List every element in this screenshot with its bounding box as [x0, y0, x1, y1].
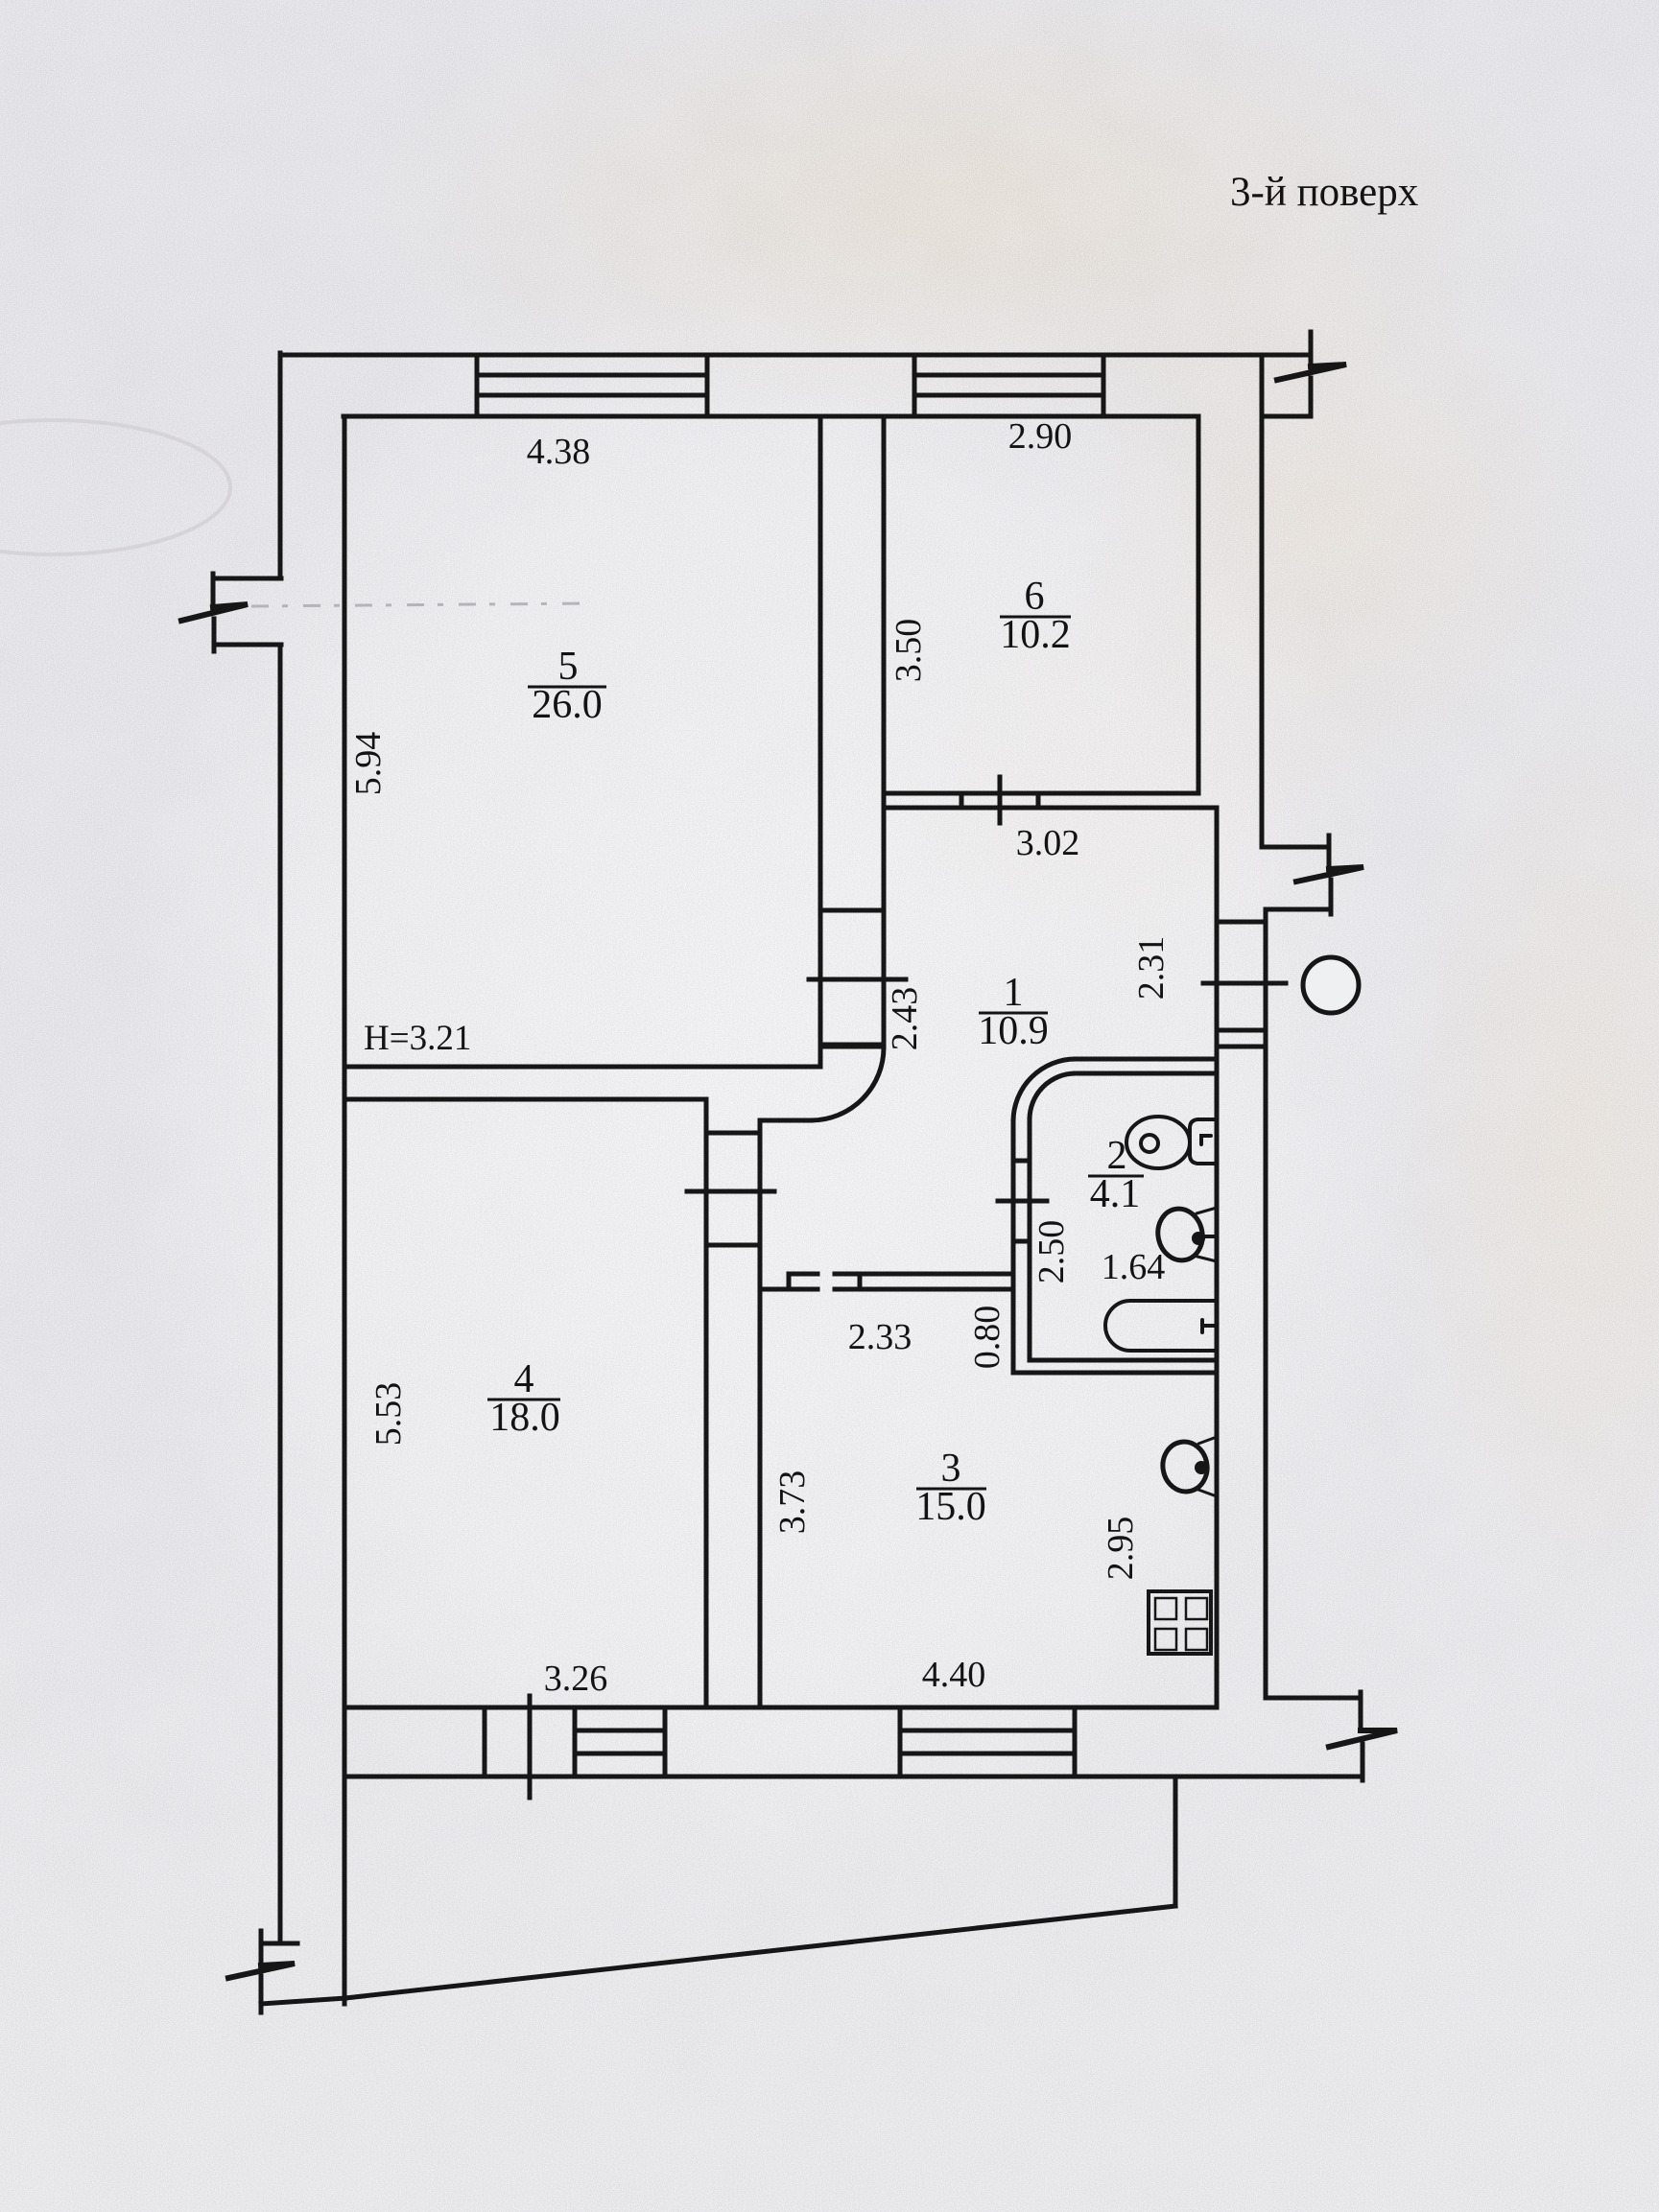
svg-text:H=3.21: H=3.21	[364, 1019, 471, 1058]
svg-text:2.31: 2.31	[1131, 936, 1172, 1000]
svg-text:2.33: 2.33	[848, 1317, 912, 1357]
svg-text:4.38: 4.38	[527, 432, 591, 472]
svg-text:26.0: 26.0	[532, 683, 603, 727]
svg-text:5.53: 5.53	[368, 1382, 409, 1447]
svg-text:2.43: 2.43	[885, 987, 925, 1051]
svg-text:15.0: 15.0	[915, 1485, 986, 1529]
svg-text:2.90: 2.90	[1008, 416, 1073, 457]
svg-text:3-й поверх: 3-й поверх	[1230, 170, 1418, 215]
svg-text:2.50: 2.50	[1031, 1220, 1072, 1284]
svg-text:5.94: 5.94	[348, 732, 389, 796]
svg-text:10.2: 10.2	[1000, 613, 1071, 657]
svg-text:3.26: 3.26	[544, 1659, 608, 1699]
svg-text:3.50: 3.50	[889, 619, 929, 683]
svg-text:18.0: 18.0	[489, 1396, 560, 1440]
svg-text:0.80: 0.80	[967, 1306, 1007, 1370]
svg-text:2.95: 2.95	[1101, 1517, 1141, 1581]
svg-text:3.73: 3.73	[772, 1471, 813, 1535]
svg-text:1.64: 1.64	[1102, 1247, 1166, 1287]
svg-text:4.1: 4.1	[1090, 1172, 1141, 1216]
svg-text:10.9: 10.9	[978, 1009, 1049, 1053]
svg-text:4.40: 4.40	[922, 1655, 986, 1695]
svg-text:3.02: 3.02	[1016, 823, 1080, 863]
